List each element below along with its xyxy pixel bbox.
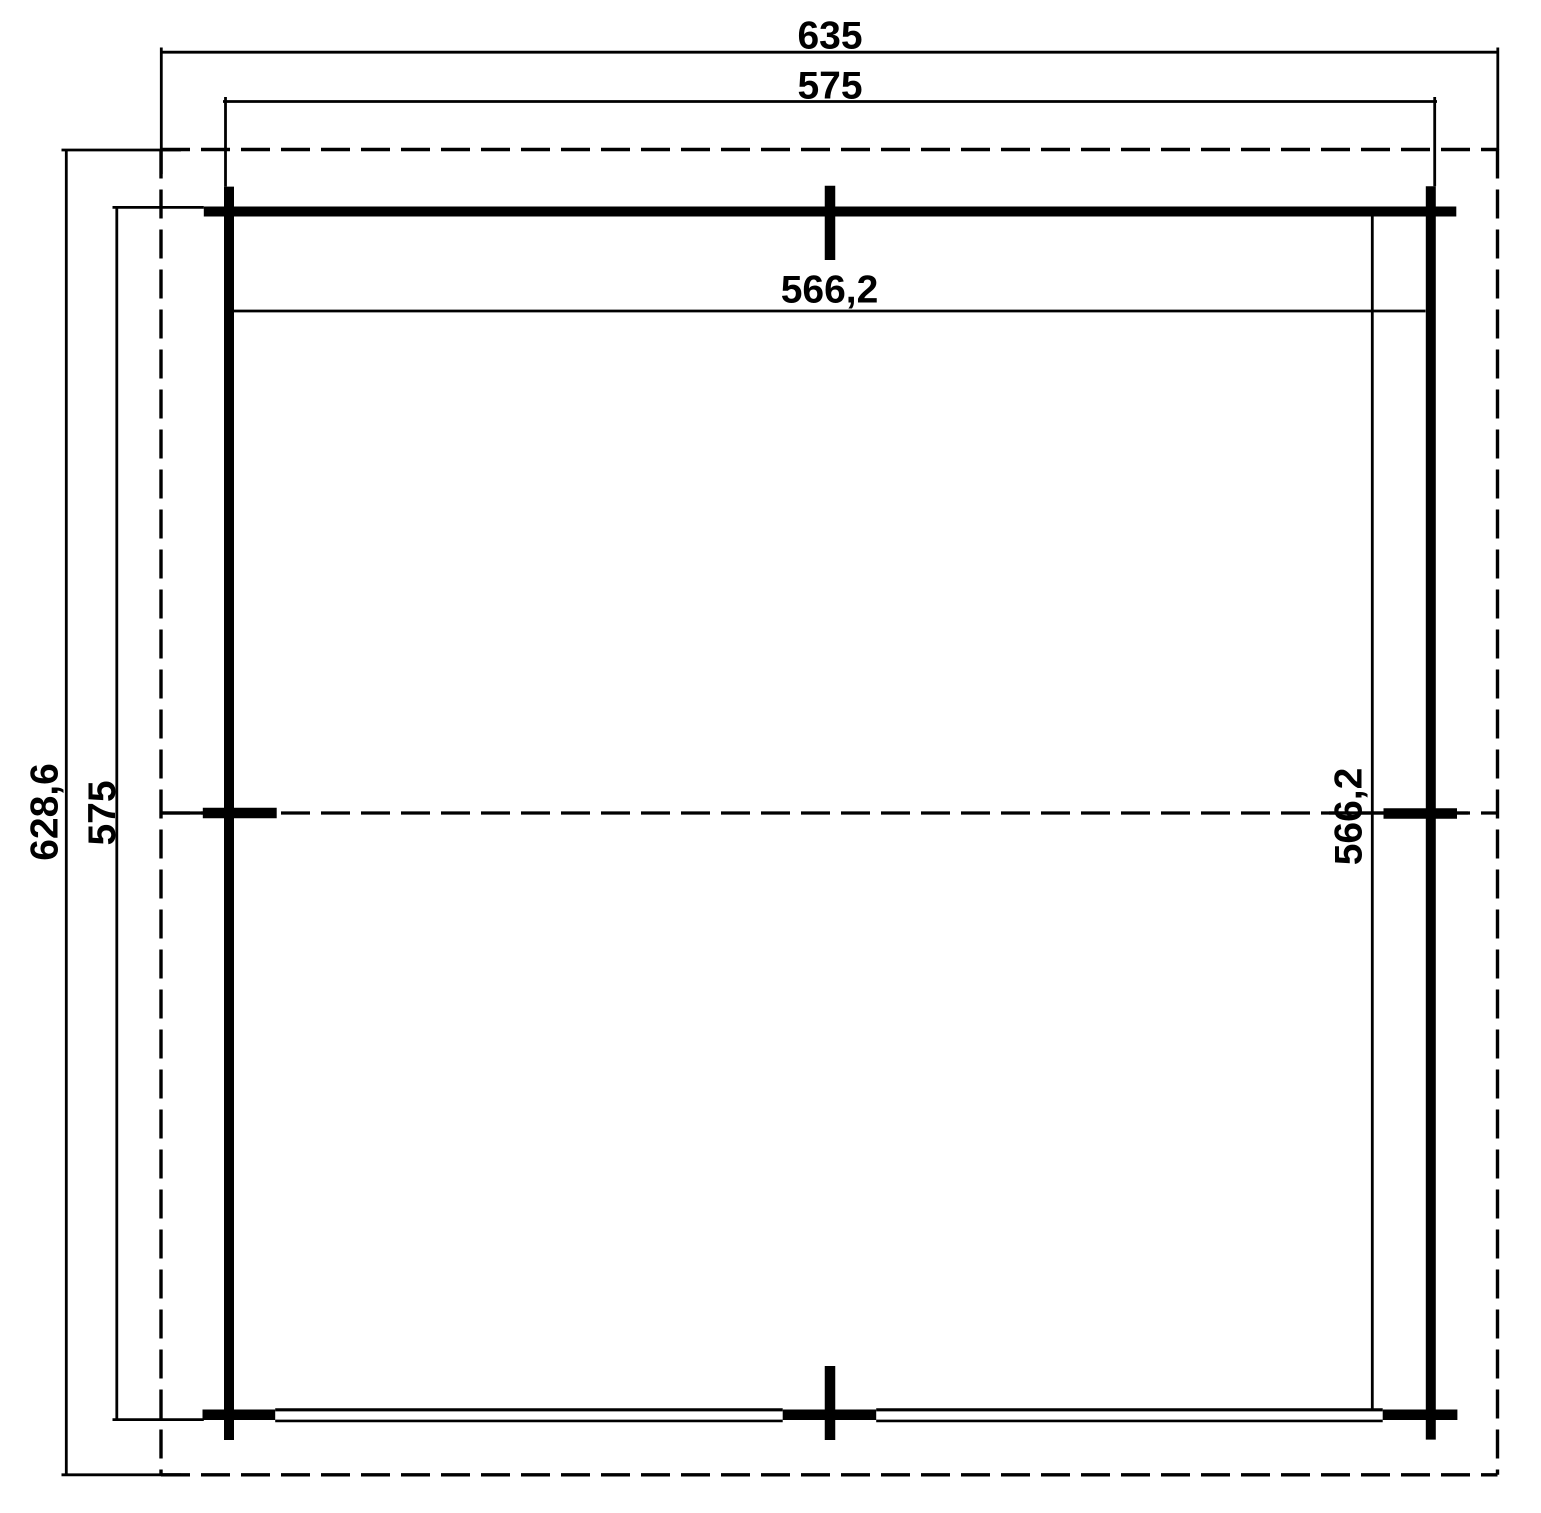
svg-text:566,2: 566,2: [1328, 768, 1371, 866]
svg-text:635: 635: [797, 15, 862, 58]
svg-text:628,6: 628,6: [24, 763, 67, 861]
svg-text:566,2: 566,2: [781, 269, 879, 312]
svg-text:575: 575: [797, 65, 862, 108]
svg-text:575: 575: [81, 780, 124, 845]
